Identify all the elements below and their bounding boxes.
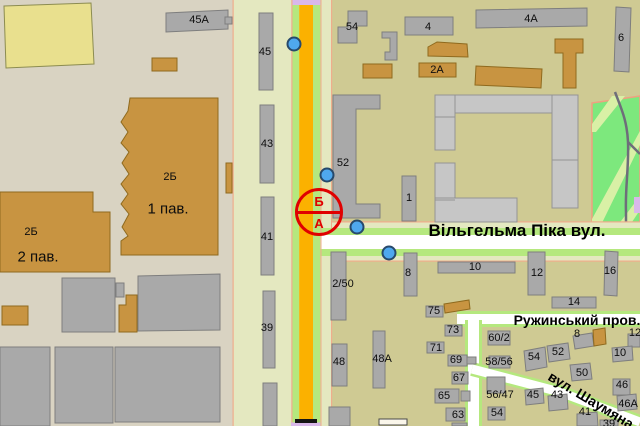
building [528,252,545,295]
building [476,8,587,28]
building [419,63,456,77]
building [116,283,124,297]
map-point-marker[interactable] [350,220,365,235]
building [525,388,544,405]
building [260,105,274,183]
building [0,347,50,426]
selection-label-bottom: А [298,217,340,230]
building-pavilion-1 [121,98,218,255]
building [548,394,568,411]
building [427,342,444,353]
building-complex [435,95,455,150]
building [329,407,350,426]
map-point-marker[interactable] [287,37,302,52]
building [435,389,459,403]
building-complex [552,95,578,208]
building [331,252,346,320]
street-margin [332,256,640,261]
selection-divider-line [296,211,342,214]
corridor-edge [233,0,234,426]
street-verge [318,228,640,235]
building [613,379,630,395]
building [225,17,232,24]
building [404,253,417,296]
building [570,363,592,381]
road-edge [291,0,292,426]
building [604,251,618,296]
building [628,334,640,347]
building [489,356,510,368]
building [600,420,618,426]
selected-location-marker[interactable]: Б А [295,188,343,236]
building [428,42,468,57]
building [138,274,220,331]
building [487,377,505,393]
building [612,346,633,362]
map-point-marker[interactable] [320,168,335,183]
selection-label-top: Б [298,195,340,208]
building [263,383,277,426]
building [55,347,113,423]
street-verge [318,249,640,256]
tram-segment-bottom [291,423,320,426]
building [573,333,594,349]
building [593,328,606,346]
building-complex [435,198,517,222]
building [263,291,275,368]
building [488,407,505,420]
building [363,64,392,78]
building [446,408,465,421]
building [62,278,115,332]
building [2,306,28,325]
building [373,331,385,388]
building [115,347,220,422]
map-point-marker[interactable] [382,246,397,261]
building [552,297,596,308]
street-vilhelma-pika [318,221,640,261]
building [461,391,470,401]
building [379,419,407,425]
building [166,10,228,32]
building [332,344,347,386]
tram-segment-top [293,0,321,5]
building [577,412,598,426]
park-patch [634,197,640,213]
building [152,58,177,71]
building [448,355,467,366]
building [475,66,542,88]
building [617,394,637,411]
building [405,17,453,35]
building [438,262,515,273]
lane-roadway [457,314,640,324]
map-canvas[interactable]: 45А2Б1 пав.2Б2 пав.454341395444А2А65212/… [0,0,640,426]
crossing-bar [295,419,317,423]
building [452,372,468,384]
building [226,163,232,193]
lane-verge [457,311,640,314]
building-pavilion-2 [0,192,110,272]
building [402,176,416,221]
building [488,331,510,345]
building [547,343,570,362]
street-roadway [318,235,640,249]
building [467,357,476,364]
building [426,306,443,317]
building [261,197,274,275]
building [524,347,547,371]
building [445,325,462,336]
building [259,13,273,90]
park [592,92,640,225]
building [4,3,94,68]
building [614,7,631,72]
street-margin [332,222,640,228]
lane-verge [457,324,640,327]
